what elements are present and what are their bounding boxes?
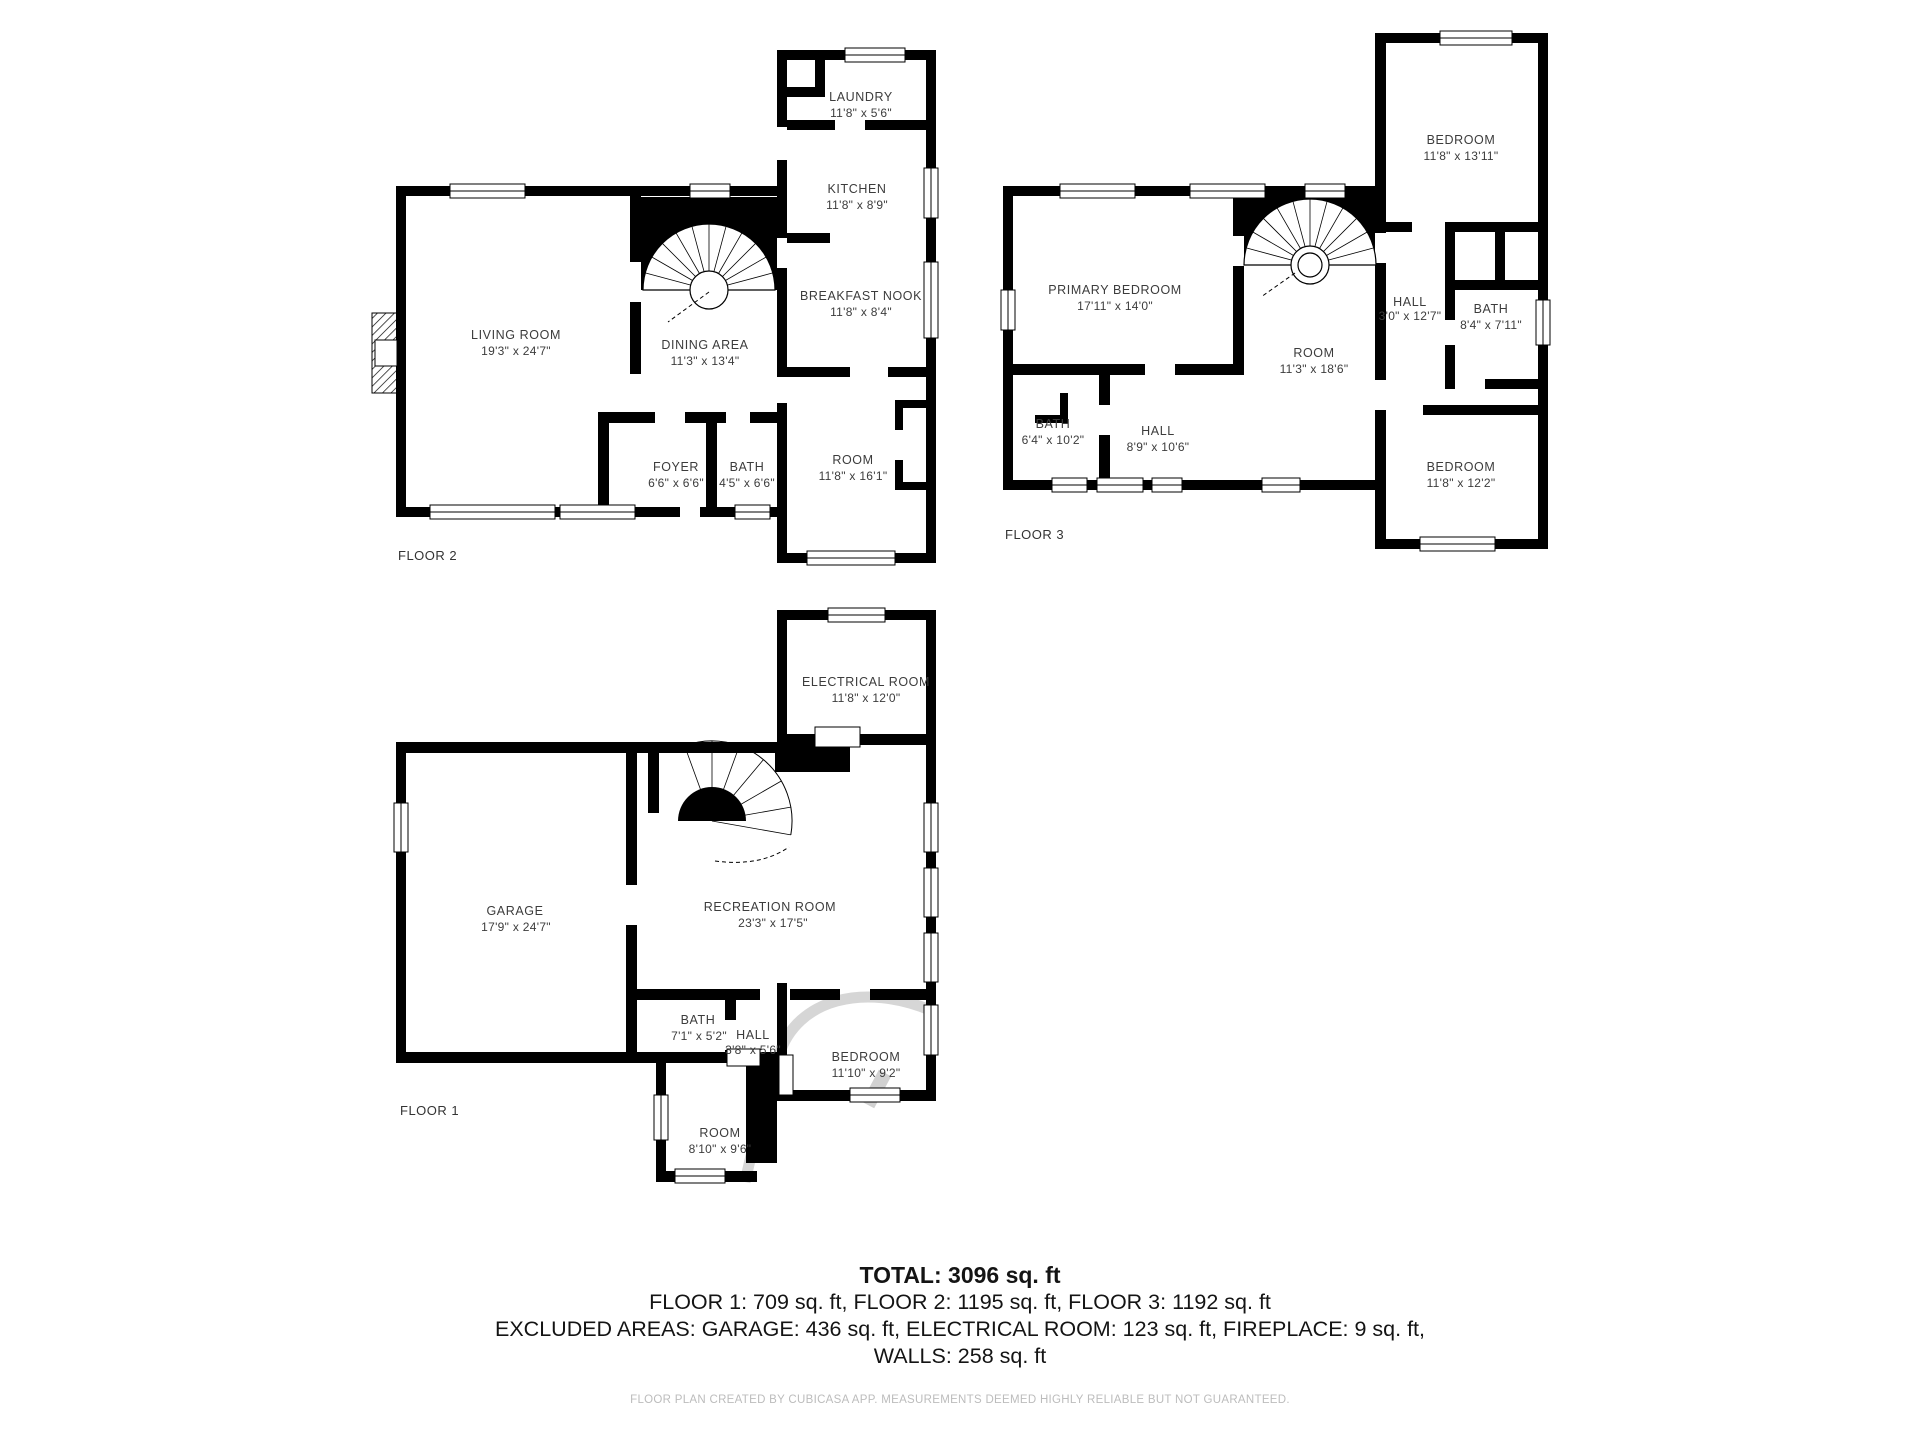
room-label-living-room: LIVING ROOM (471, 328, 561, 342)
room-label-foyer: FOYER (653, 460, 699, 474)
room-dims-bedroom-top: 11'8" x 13'11" (1424, 149, 1499, 163)
room-label-bedroom-bottom: BEDROOM (1427, 460, 1496, 474)
room-dims-bath-upper: 8'4" x 7'11" (1460, 318, 1522, 332)
room-label-bath: BATH (730, 460, 765, 474)
room-dims-primary-bedroom: 17'11" x 14'0" (1077, 299, 1153, 313)
room-label-dining-area: DINING AREA (661, 338, 748, 352)
floor-1-plan: ELECTRICAL ROOM 11'8" x 12'0" GARAGE 17'… (385, 605, 965, 1200)
room-dims-breakfast-nook: 11'8" x 8'4" (830, 305, 892, 319)
room-dims-hall-lower: 8'9" x 10'6" (1127, 440, 1190, 454)
floor1-stairs (678, 741, 792, 862)
room-dims-bedroom-bottom: 11'8" x 12'2" (1427, 476, 1496, 490)
floor-1-label: FLOOR 1 (400, 1103, 459, 1118)
room-dims-dining-area: 11'3" x 13'4" (671, 354, 740, 368)
excluded-areas-text: EXCLUDED AREAS: GARAGE: 436 sq. ft, ELEC… (0, 1316, 1920, 1343)
room-label-room: ROOM (699, 1126, 740, 1140)
room-label-hall: HALL (736, 1028, 770, 1042)
room-label-room: ROOM (1293, 346, 1334, 360)
room-dims-bedroom: 11'10" x 9'2" (832, 1066, 901, 1080)
floor2-labels: LIVING ROOM 19'3" x 24'7" DINING AREA 11… (398, 90, 922, 563)
room-label-bath-upper: BATH (1474, 302, 1509, 316)
floor-3-label: FLOOR 3 (1005, 527, 1064, 542)
floor-2-plan: LIVING ROOM 19'3" x 24'7" DINING AREA 11… (370, 40, 950, 575)
room-dims-kitchen: 11'8" x 8'9" (826, 198, 888, 212)
floor-2-label: FLOOR 2 (398, 548, 457, 563)
room-dims-room: 11'3" x 18'6" (1280, 362, 1349, 376)
room-label-room: ROOM (832, 453, 873, 467)
floor-plan-page: LIVING ROOM 19'3" x 24'7" DINING AREA 11… (0, 0, 1920, 1440)
room-label-primary-bedroom: PRIMARY BEDROOM (1048, 283, 1182, 297)
room-dims-living-room: 19'3" x 24'7" (481, 344, 551, 358)
room-label-bath: BATH (681, 1013, 716, 1027)
room-label-hall-upper: HALL (1393, 295, 1427, 309)
room-dims-bath-lower: 6'4" x 10'2" (1022, 433, 1085, 447)
room-dims-laundry: 11'8" x 5'6" (830, 106, 892, 120)
room-dims-bath: 7'1" x 5'2" (671, 1029, 727, 1043)
room-label-bedroom-top: BEDROOM (1427, 133, 1496, 147)
room-dims-recreation-room: 23'3" x 17'5" (738, 916, 808, 930)
room-label-electrical-room: ELECTRICAL ROOM (802, 675, 930, 689)
room-label-recreation-room: RECREATION ROOM (704, 900, 836, 914)
room-label-garage: GARAGE (486, 904, 543, 918)
room-label-laundry: LAUNDRY (829, 90, 893, 104)
area-summary: TOTAL: 3096 sq. ft FLOOR 1: 709 sq. ft, … (0, 1262, 1920, 1370)
room-dims-electrical-room: 11'8" x 12'0" (832, 691, 901, 705)
disclaimer-text: FLOOR PLAN CREATED BY CUBICASA APP. MEAS… (0, 1394, 1920, 1406)
room-label-kitchen: KITCHEN (827, 182, 886, 196)
room-dims-room: 8'10" x 9'6" (689, 1142, 752, 1156)
room-label-breakfast-nook: BREAKFAST NOOK (800, 289, 922, 303)
walls-area-text: WALLS: 258 sq. ft (0, 1343, 1920, 1370)
room-label-bedroom: BEDROOM (832, 1050, 901, 1064)
room-dims-garage: 17'9" x 24'7" (481, 920, 551, 934)
floor-areas-text: FLOOR 1: 709 sq. ft, FLOOR 2: 1195 sq. f… (0, 1289, 1920, 1316)
floor2-fireplace (372, 313, 400, 393)
room-dims-hall: 3'8" x 5'6" (725, 1043, 781, 1057)
total-area-text: TOTAL: 3096 sq. ft (0, 1262, 1920, 1289)
room-dims-foyer: 6'6" x 6'6" (648, 476, 704, 490)
room-dims-hall-upper: 3'0" x 12'7" (1379, 309, 1442, 323)
floor-3-plan: PRIMARY BEDROOM 17'11" x 14'0" BEDROOM 1… (995, 25, 1565, 560)
room-label-hall-lower: HALL (1141, 424, 1175, 438)
room-dims-room: 11'8" x 16'1" (819, 469, 888, 483)
room-label-bath-lower: BATH (1036, 417, 1071, 431)
room-dims-bath: 4'5" x 6'6" (719, 476, 775, 490)
